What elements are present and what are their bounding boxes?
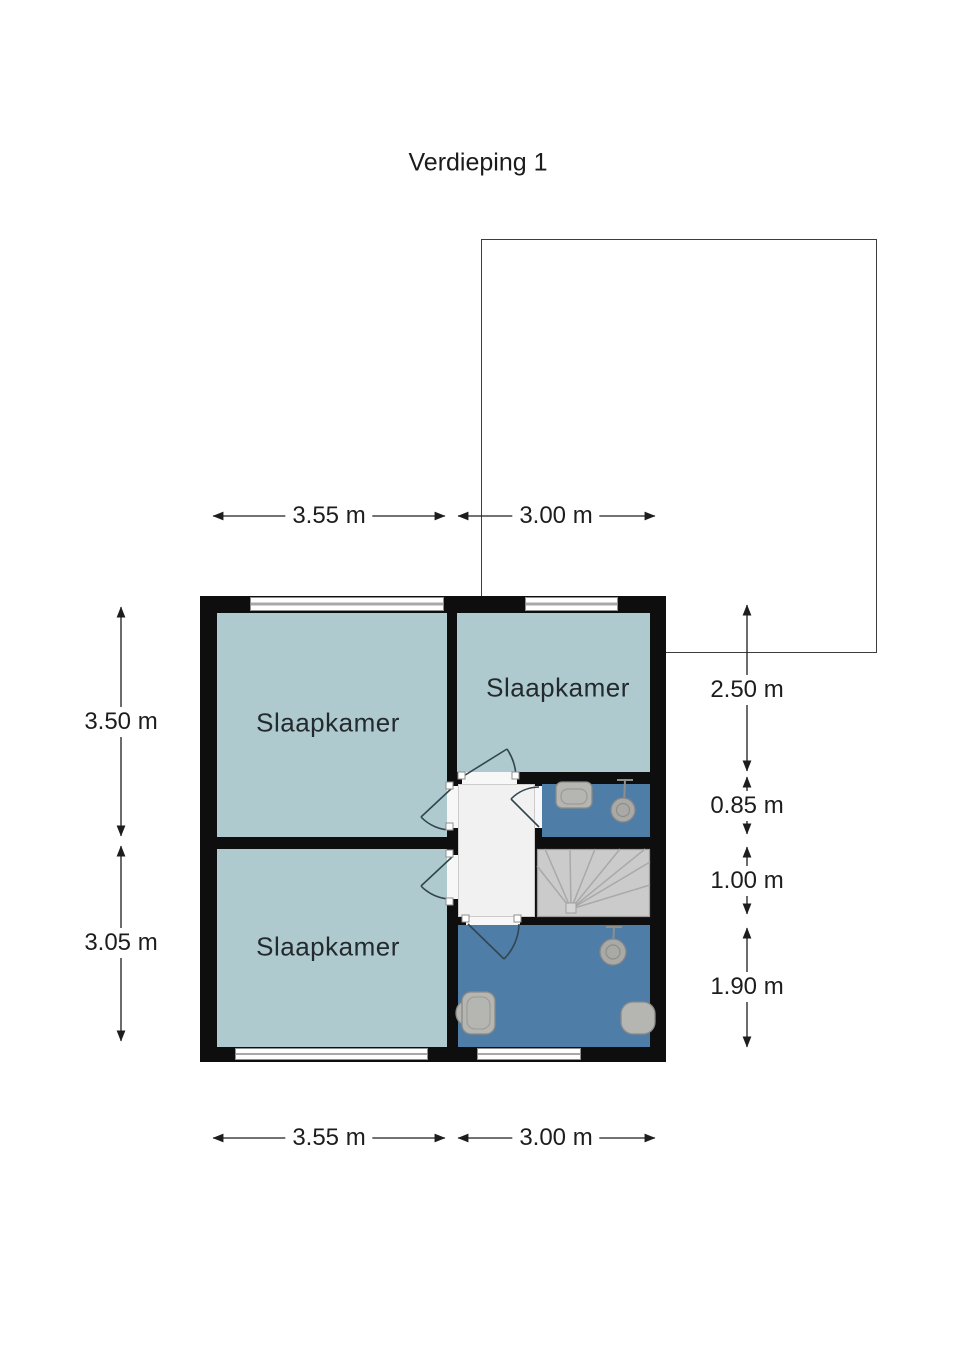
room-bathroom bbox=[458, 925, 650, 1047]
dim-label-right-085: 0.85 m bbox=[703, 791, 790, 821]
dim-label-bottom-300: 3.00 m bbox=[512, 1123, 599, 1153]
dim-label-right-250: 2.50 m bbox=[703, 675, 790, 705]
door-opening bbox=[466, 917, 520, 925]
room-label-bedroom-top-left: Slaapkamer bbox=[256, 708, 400, 739]
door-opening bbox=[535, 786, 542, 828]
window bbox=[250, 597, 444, 611]
dim-label-right-190: 1.90 m bbox=[703, 972, 790, 1002]
door-opening bbox=[447, 786, 458, 828]
floor-plan-page: Verdieping 1 Slaapkamer Slaapkamer Slaap… bbox=[0, 0, 960, 1358]
floor-plan: Slaapkamer Slaapkamer Slaapkamer bbox=[200, 596, 666, 1062]
window bbox=[525, 597, 618, 611]
dim-label-top-300: 3.00 m bbox=[512, 501, 599, 531]
door-opening bbox=[447, 855, 458, 899]
window bbox=[235, 1048, 428, 1060]
door-opening bbox=[462, 772, 517, 784]
dim-label-left-350: 3.50 m bbox=[77, 707, 164, 737]
stairs bbox=[537, 849, 650, 917]
room-label-bedroom-bottom-left: Slaapkamer bbox=[256, 932, 400, 963]
page-title: Verdieping 1 bbox=[408, 149, 547, 178]
dim-label-right-100: 1.00 m bbox=[703, 866, 790, 896]
dim-label-top-355: 3.55 m bbox=[285, 501, 372, 531]
room-shower-room bbox=[542, 784, 650, 837]
dim-label-bottom-355: 3.55 m bbox=[285, 1123, 372, 1153]
room-label-bedroom-top-right: Slaapkamer bbox=[486, 673, 630, 704]
window bbox=[477, 1048, 581, 1060]
room-landing bbox=[458, 784, 535, 917]
dim-label-left-305: 3.05 m bbox=[77, 928, 164, 958]
roof-outline bbox=[481, 239, 877, 653]
